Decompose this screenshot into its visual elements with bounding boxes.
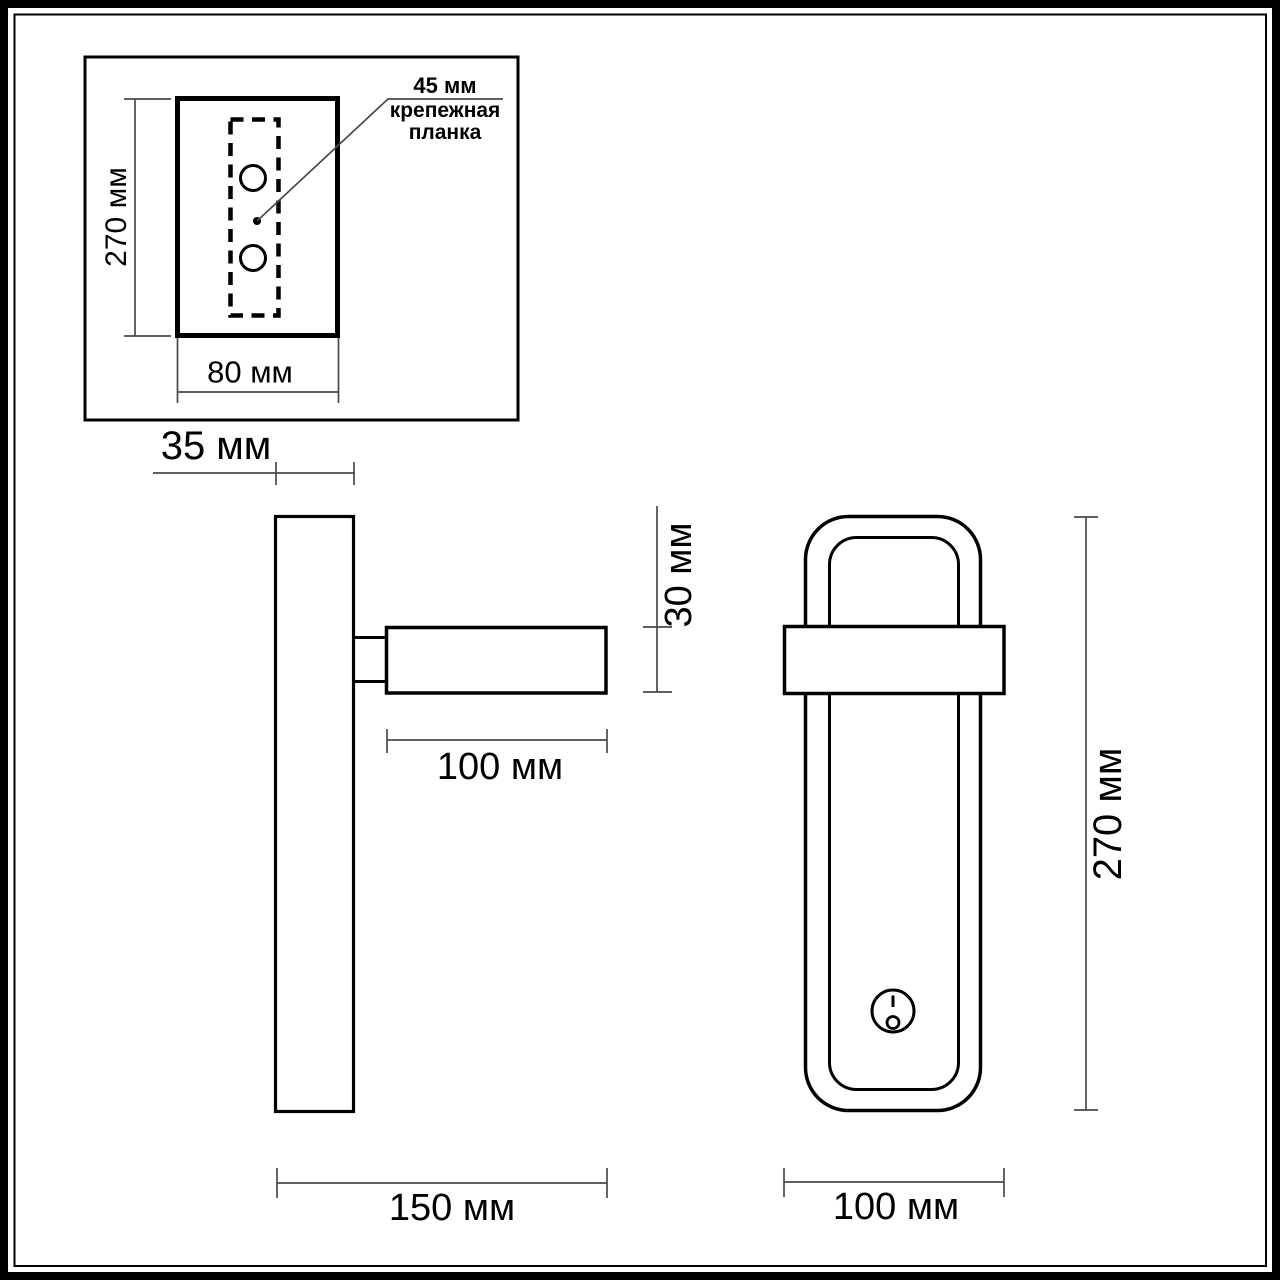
head-length-label: 100 мм xyxy=(437,748,563,786)
side-depth-label: 150 мм xyxy=(389,1189,515,1227)
front-body-outer xyxy=(806,517,981,1111)
plate-width-label: 80 мм xyxy=(207,357,293,388)
side-lamp-head xyxy=(387,628,607,694)
power-switch xyxy=(872,990,914,1032)
mounting-bracket-dashed xyxy=(231,120,279,316)
mounting-plate xyxy=(178,99,338,336)
page-frame-inner xyxy=(15,15,1267,1267)
front-width-label: 100 мм xyxy=(833,1188,959,1226)
wall-offset-label: 35 мм xyxy=(161,426,272,466)
technical-drawing-page: 270 мм 80 мм 45 мм крепежная планка 35 м… xyxy=(0,0,1280,1280)
bracket-callout-line2: планка xyxy=(390,122,501,144)
switch-off-mark xyxy=(887,1017,899,1029)
drawing-canvas xyxy=(0,0,1280,1280)
screw-hole-top xyxy=(241,166,266,191)
head-height-label: 30 мм xyxy=(660,522,698,627)
front-height-label: 270 мм xyxy=(1088,748,1128,881)
side-view xyxy=(153,462,672,1198)
front-view xyxy=(784,517,1098,1198)
side-backplate xyxy=(276,517,354,1112)
bracket-callout-line1: крепежная xyxy=(390,100,501,122)
bracket-callout-value-label: 45 мм xyxy=(413,75,476,97)
bracket-callout-text: крепежная планка xyxy=(390,100,501,144)
plate-height-label: 270 мм xyxy=(102,167,132,267)
front-band xyxy=(785,627,1005,694)
screw-hole-bottom xyxy=(241,246,266,271)
